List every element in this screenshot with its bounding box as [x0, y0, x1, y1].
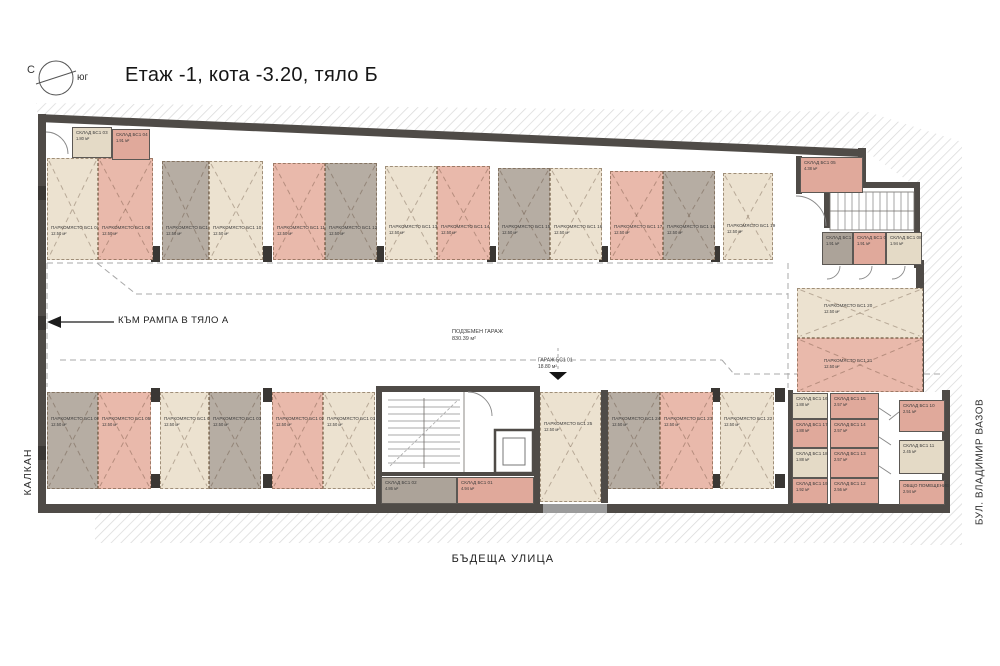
storage-room: СКЛАД БС1 071.91 м² [853, 232, 886, 265]
parking-space: ПАРКОМЯСТО БС1 2312.50 м² [660, 392, 713, 489]
room-label: СКЛАД БС1 191.92 м² [796, 481, 832, 493]
parking-cross-icon [664, 172, 714, 259]
parking-space: ПАРКОМЯСТО БС1 2012.50 м² [797, 288, 923, 338]
parking-cross-icon [798, 339, 922, 391]
room-label: СКЛАД БС1 181.88 м² [796, 451, 832, 463]
room-label: СКЛАД БС1 081.94 м² [890, 235, 926, 247]
room-label: ОБЩО ПОМЕЩЕНИЕ2.94 м² [903, 483, 949, 495]
parking-space: ПАРКОМЯСТО БС1 2412.50 м² [608, 392, 660, 489]
garage-name: ПОДЗЕМЕН ГАРАЖ [452, 328, 503, 335]
parking-cross-icon [661, 393, 712, 488]
storage-room: СКЛАД БС1 171.88 м² [792, 419, 828, 448]
room-label: СКЛАД БС1 112.45 м² [903, 443, 949, 455]
parking-space: ПАРКОМЯСТО БС1 1112.50 м² [273, 163, 325, 260]
storage-room: СКЛАД БС1 161.88 м² [792, 393, 828, 419]
stairs-bottom-middle [388, 392, 464, 472]
room-label: СКЛАД БС1 014.94 м² [461, 480, 540, 492]
room-label: СКЛАД БС1 171.88 м² [796, 422, 832, 434]
room-label: СКЛАД БС1 041.91 м² [116, 132, 154, 144]
parking-cross-icon [274, 164, 324, 259]
parking-cross-icon [609, 393, 659, 488]
room-label: СКЛАД БС1 152.57 м² [834, 396, 884, 408]
room-label: СКЛАД БС1 161.88 м² [796, 396, 832, 408]
parking-cross-icon [386, 167, 436, 259]
parking-cross-icon [210, 393, 260, 488]
parking-space: ПАРКОМЯСТО БС1 2212.50 м² [720, 392, 774, 489]
room-label: СКЛАД БС1 071.91 м² [857, 235, 890, 247]
storage-room: СКЛАД БС1 031.80 м² [72, 127, 112, 158]
parking-cross-icon [798, 289, 922, 337]
room-label: СКЛАД БС1 102.51 м² [903, 403, 949, 415]
parking-space: ПАРКОМЯСТО БС1 0212.50 м² [272, 392, 323, 489]
parking-space: ПАРКОМЯСТО БС1 1812.50 м² [663, 171, 715, 260]
left-wall-label: КАЛКАН [22, 449, 34, 496]
parking-space: ПАРКОМЯСТО БС1 1512.50 м² [498, 168, 550, 260]
page-title: Етаж -1, кота -3.20, тяло Б [125, 64, 378, 87]
parking-cross-icon [48, 159, 97, 259]
storage-room: СКЛАД БС1 152.57 м² [830, 393, 879, 419]
storage-room: СКЛАД БС1 191.92 м² [792, 478, 828, 504]
storage-room: ОБЩО ПОМЕЩЕНИЕ2.94 м² [899, 480, 945, 505]
storage-room: СКЛАД БС1 041.91 м² [112, 129, 150, 160]
parking-space: ПАРКОМЯСТО БС1 1412.50 м² [437, 166, 490, 260]
parking-cross-icon [163, 162, 208, 259]
garage-area-annotation: ПОДЗЕМЕН ГАРАЖ 830.39 м² [452, 328, 545, 354]
parking-space: ПАРКОМЯСТО БС1 0412.50 м² [160, 392, 209, 489]
storage-room: СКЛАД БС1 181.88 м² [792, 448, 828, 478]
parking-space: ПАРКОМЯСТО БС1 1212.50 м² [325, 163, 377, 260]
parking-cross-icon [273, 393, 322, 488]
parking-cross-icon [161, 393, 208, 488]
parking-cross-icon [551, 169, 601, 259]
storage-room: СКЛАД БС1 061.91 м² [822, 232, 853, 265]
parking-cross-icon [99, 159, 152, 259]
parking-space: ПАРКОМЯСТО БС1 0912.50 м² [162, 161, 209, 260]
parking-cross-icon [438, 167, 489, 259]
parking-space: ПАРКОМЯСТО БС1 0112.50 м² [323, 392, 375, 489]
storage-room: СКЛАД БС1 014.94 м² [457, 477, 534, 504]
parking-space: ПАРКОМЯСТО БС1 0712.50 м² [47, 158, 98, 260]
storage-room: СКЛАД БС1 112.45 м² [899, 440, 945, 474]
right-street-label: БУЛ. ВЛАДИМИР ВАЗОВ [975, 399, 986, 525]
ramp-annotation: КЪМ РАМПА В ТЯЛО А [118, 315, 229, 326]
parking-cross-icon [326, 164, 376, 259]
parking-space: ПАРКОМЯСТО БС1 1912.50 м² [723, 173, 773, 260]
parking-space: ПАРКОМЯСТО БС1 0612.50 м² [47, 392, 98, 489]
parking-cross-icon [611, 172, 662, 259]
entrance-arrow-icon [549, 372, 567, 380]
room-label: СКЛАД БС1 132.57 м² [834, 451, 884, 463]
storage-room: СКЛАД БС1 122.56 м² [830, 478, 879, 504]
room-label: СКЛАД БС1 122.56 м² [834, 481, 884, 493]
bottom-street-label: БЪДЕЩА УЛИЦА [452, 553, 555, 565]
storage-room: СКЛАД БС1 132.57 м² [830, 448, 879, 478]
storage-room: СКЛАД БС1 054.38 м² [800, 157, 863, 193]
parking-space: ПАРКОМЯСТО БС1 0512.50 м² [98, 392, 151, 489]
parking-cross-icon [210, 162, 262, 259]
parking-cross-icon [99, 393, 150, 488]
compass-icon: С юг [26, 56, 96, 104]
parking-cross-icon [499, 169, 549, 259]
stairs-top-right [830, 192, 914, 230]
parking-space: ПАРКОМЯСТО БС1 0312.50 м² [209, 392, 261, 489]
room-label: СКЛАД БС1 054.38 м² [804, 160, 868, 172]
storage-room: СКЛАД БС1 081.94 м² [886, 232, 922, 265]
parking-cross-icon [541, 393, 600, 501]
storage-room: СКЛАД БС1 102.51 м² [899, 400, 945, 432]
compass-south-label: юг [77, 72, 88, 83]
parking-space: ПАРКОМЯСТО БС1 1312.50 м² [385, 166, 437, 260]
elevator [495, 430, 533, 473]
garage-entry-area: 18.80 м² [538, 364, 573, 371]
storage-room: СКЛАД БС1 142.57 м² [830, 419, 879, 448]
parking-cross-icon [724, 174, 772, 259]
parking-cross-icon [721, 393, 773, 488]
room-label: СКЛАД БС1 024.86 м² [385, 480, 463, 492]
compass-north-label: С [27, 64, 35, 76]
floor-plan: КЪМ РАМПА В ТЯЛО А ПОДЗЕМЕН ГАРАЖ 830.39… [0, 0, 1000, 666]
parking-space: ПАРКОМЯСТО БС1 0812.50 м² [98, 158, 153, 260]
parking-space: ПАРКОМЯСТО БС1 2112.50 м² [797, 338, 923, 392]
parking-space: ПАРКОМЯСТО БС1 2512.50 м² [540, 392, 601, 502]
parking-space: ПАРКОМЯСТО БС1 1612.50 м² [550, 168, 602, 260]
parking-space: ПАРКОМЯСТО БС1 1712.50 м² [610, 171, 663, 260]
parking-cross-icon [324, 393, 374, 488]
parking-space: ПАРКОМЯСТО БС1 1012.50 м² [209, 161, 263, 260]
room-label: СКЛАД БС1 031.80 м² [76, 130, 116, 142]
ramp-arrow-icon [47, 316, 114, 328]
garage-total-area: 830.39 м² [452, 335, 503, 342]
storage-room: СКЛАД БС1 024.86 м² [381, 477, 457, 504]
room-label: СКЛАД БС1 142.57 м² [834, 422, 884, 434]
parking-cross-icon [48, 393, 97, 488]
